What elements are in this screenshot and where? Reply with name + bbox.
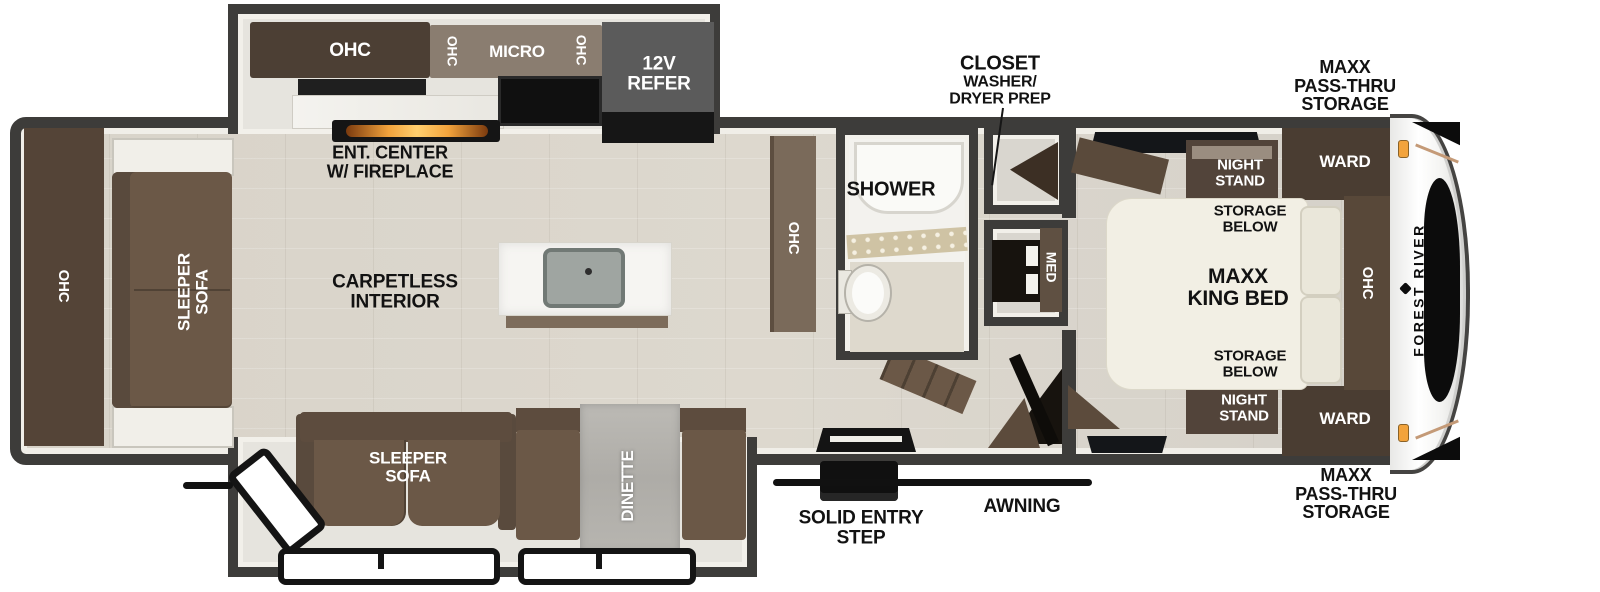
closet-label: CLOSET [960,54,1040,75]
rear-sofa-end-table-bottom [112,406,234,448]
cooktop [498,76,602,126]
marker-light-top [1398,140,1409,158]
vanity-sink-bottom [1026,274,1038,294]
island-sink [543,248,625,308]
dinette-bench-left [516,430,580,540]
pillow-top [1300,206,1342,296]
kitchen-ohc-right-label: OHC [574,35,589,66]
ward-top-label: WARD [1319,153,1370,171]
dinette-bench-right [682,430,746,540]
sink-faucet [585,268,592,275]
storage-below-bottom-label: STORAGE BELOW [1214,348,1287,379]
micro-label: MICRO [489,43,545,61]
rear-ohc-label: OHC [55,270,71,303]
fireplace-flame [346,125,488,137]
pillow-bottom [1300,296,1342,384]
marker-light-bottom [1398,424,1409,442]
kitchen-ohc-label: OHC [329,41,371,61]
awning-line [773,479,1092,486]
range-hood [298,79,426,96]
pass-thru-storage-bottom-label: MAXX PASS-THRU STORAGE [1295,466,1397,522]
storage-below-top-label: STORAGE BELOW [1214,203,1287,234]
slide-window-left-mullion [378,552,384,569]
awning-label: AWNING [984,497,1061,517]
carpetless-interior-label: CARPETLESS INTERIOR [332,272,458,312]
bottom-sleeper-sofa-label: SLEEPER SOFA [369,449,447,484]
night-stand-top-label: NIGHT STAND [1215,157,1265,188]
slide-window-left [278,548,500,585]
hall-ohc-label: OHC [785,222,801,255]
shower-label: SHOWER [847,180,936,201]
night-stand-bottom-label: NIGHT STAND [1219,392,1269,423]
med-label: MED [1044,252,1059,283]
brand-label: FOREST RIVER [1412,223,1427,356]
slide-window-right [518,548,696,585]
interior-entry-step-tread [830,436,902,442]
front-cap-decal [1424,178,1460,402]
refrigerator-base [602,112,714,143]
king-bed-label: MAXX KING BED [1187,266,1288,310]
kitchen-ohc-left-label: OHC [445,36,460,67]
rear-grab-handle [183,482,233,489]
bedroom-ohc-label: OHC [1359,267,1375,300]
rear-sofa-end-table-top [112,138,234,176]
vanity-sink-top [1026,246,1038,266]
ward-bottom-label: WARD [1319,410,1370,428]
toilet [844,264,892,322]
rear-sleeper-sofa-label: SLEEPER SOFA [175,253,210,331]
slide-window-right-mullion [596,552,602,569]
pass-thru-storage-top-label: MAXX PASS-THRU STORAGE [1294,58,1396,114]
closet-subtitle-label: WASHER/ DRYER PREP [949,74,1050,107]
rv-floorplan: OHC OHC MICRO OHC 12V REFER ENT. CENTER … [0,0,1600,592]
entry-step-label: SOLID ENTRY STEP [799,508,924,548]
bedroom-bottom-tv [1087,436,1167,453]
sofa-backrest [300,412,512,442]
ent-center-label: ENT. CENTER W/ FIREPLACE [327,143,454,180]
dinette-label: DINETTE [619,450,637,521]
refer-label: 12V REFER [627,54,690,94]
